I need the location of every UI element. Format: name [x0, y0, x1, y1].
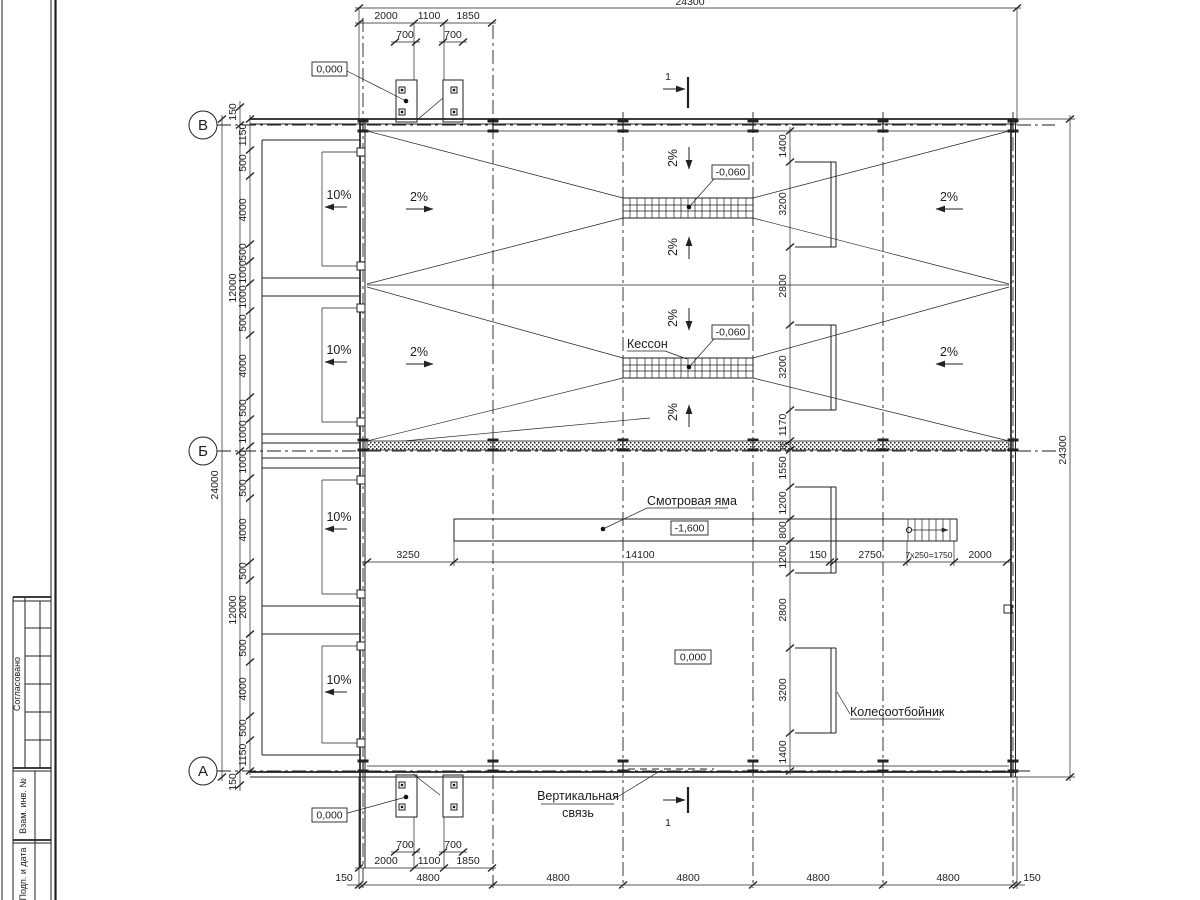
- hall-level: 0,000: [675, 650, 711, 664]
- dim-4800-5: 4800: [936, 872, 960, 884]
- inspection-pit: Смотровая яма -1,600: [454, 494, 957, 541]
- dim-l-500-2: 500: [237, 243, 249, 261]
- caisson-grate-1: -0,060: [623, 165, 753, 218]
- caisson-label: Кессон: [627, 337, 668, 351]
- dim-l-1000-4: 1000: [237, 450, 249, 474]
- dim-r-1200-1: 1200: [777, 491, 789, 515]
- dim-l-24000: 24000: [209, 470, 221, 499]
- slope-2pct-g1-above: 2%: [666, 149, 680, 167]
- dim-r-80: 80: [778, 440, 788, 450]
- dim-r-1200-2: 1200: [777, 545, 789, 569]
- dim-700-bot-1: 700: [396, 839, 414, 851]
- axis-label-a: А: [198, 763, 208, 780]
- dim-r-2800-1: 2800: [777, 274, 789, 298]
- dim-4800-1: 4800: [416, 872, 440, 884]
- wheel-guard-label: Колесоотбойник: [850, 705, 945, 719]
- drain-channel: [367, 441, 1009, 450]
- dim-2000-top: 2000: [374, 10, 398, 22]
- ramp-slope-4: 10%: [326, 673, 351, 687]
- section-mark-top: 1: [663, 71, 688, 108]
- caisson-grate-2: -0,060 Кессон: [623, 325, 753, 378]
- ramps: 10% 10% 10% 10%: [262, 140, 365, 755]
- inspection-pit-label: Смотровая яма: [647, 494, 737, 508]
- dim-150-pit: 150: [809, 549, 827, 561]
- brace-label-line2: связь: [562, 806, 594, 820]
- slope-2pct-g2-above: 2%: [666, 309, 680, 327]
- dim-r-3200-1: 3200: [777, 192, 789, 216]
- slope-lines: [367, 131, 1009, 444]
- dim-4800-4: 4800: [806, 872, 830, 884]
- dim-l-150-top: 150: [227, 103, 239, 121]
- level-zero-bottom: 0,000: [316, 810, 342, 822]
- dim-total-top: 24300: [675, 0, 704, 8]
- dim-1100-top: 1100: [418, 10, 441, 22]
- ramp-slope-2: 10%: [326, 343, 351, 357]
- entrance-top: 0,000: [312, 62, 463, 122]
- dim-700-top-2: 700: [444, 29, 462, 41]
- section-number-bottom: 1: [665, 817, 671, 829]
- dim-4800-3: 4800: [676, 872, 700, 884]
- dim-l-500-7: 500: [237, 639, 249, 657]
- dim-l-4000-1: 4000: [237, 198, 249, 222]
- ramp-slope-1: 10%: [326, 188, 351, 202]
- dim-700-top-1: 700: [396, 29, 414, 41]
- dim-l-1150-2: 1150: [237, 744, 249, 767]
- dim-150-bot-left: 150: [335, 872, 353, 884]
- cross-slope-labels: 2% 2% 2% 2% 2% 2% 2% 2%: [406, 147, 963, 427]
- level-minus060-2: -0,060: [716, 327, 746, 339]
- grid-axes: В Б А: [189, 18, 1060, 888]
- slope-2pct-left-1: 2%: [410, 190, 428, 204]
- floor-plan-drawing: Согласовано Взам. инв. № Подп. и дата В …: [0, 0, 1200, 900]
- dim-700-bot-2: 700: [444, 839, 462, 851]
- level-zero-hall: 0,000: [680, 652, 706, 664]
- dim-1850-bot: 1850: [456, 855, 480, 867]
- dim-r-800: 800: [777, 521, 789, 539]
- dim-1100-bot: 1100: [418, 855, 441, 867]
- dim-l-12000-1: 12000: [227, 273, 239, 302]
- dim-3250: 3250: [396, 549, 420, 561]
- dim-150-bot-right: 150: [1023, 872, 1041, 884]
- dim-steps: 7х250=1750: [905, 550, 952, 560]
- entrance-bottom: 0,000: [312, 774, 463, 822]
- dim-l-1000-3: 1000: [237, 420, 249, 444]
- dim-l-12000-2: 12000: [227, 595, 239, 624]
- dim-l-4000-2: 4000: [237, 354, 249, 378]
- dim-14100: 14100: [625, 549, 654, 561]
- dim-r-1170: 1170: [777, 414, 789, 437]
- brace-label-line1: Вертикальная: [537, 789, 619, 803]
- section-mark-bottom: 1: [663, 787, 688, 829]
- dim-l-4000-4: 4000: [237, 677, 249, 701]
- level-zero-top: 0,000: [316, 64, 342, 76]
- dims-pit: 3250 14100 150 2750 7х250=1750 2000: [363, 541, 1011, 566]
- slope-2pct-right-2: 2%: [940, 345, 958, 359]
- level-minus1600: -1,600: [675, 523, 705, 535]
- level-minus060-1: -0,060: [716, 167, 746, 179]
- ramp-slope-labels: 10% 10% 10% 10%: [325, 188, 352, 692]
- dim-l-4000-3: 4000: [237, 518, 249, 542]
- ramp-slope-3: 10%: [326, 510, 351, 524]
- title-block: Согласовано Взам. инв. № Подп. и дата: [2, 0, 56, 900]
- dim-total-right: 24300: [1057, 435, 1069, 464]
- slope-2pct-left-2: 2%: [410, 345, 428, 359]
- dim-2000-pit: 2000: [968, 549, 992, 561]
- dim-2000-bot: 2000: [374, 855, 398, 867]
- dims-right-outer: 24300: [1017, 115, 1075, 781]
- titleblock-approved: Согласовано: [12, 657, 22, 711]
- dim-4800-2: 4800: [546, 872, 570, 884]
- dim-l-500-5: 500: [237, 479, 249, 497]
- dim-r-1400-2: 1400: [777, 740, 789, 764]
- dim-l-500-8: 500: [237, 719, 249, 737]
- dim-l-150-bot: 150: [227, 773, 239, 791]
- dim-r-1400-1: 1400: [777, 134, 789, 158]
- dim-r-3200-2: 3200: [777, 355, 789, 379]
- section-number-top: 1: [665, 71, 671, 83]
- slope-2pct-right-1: 2%: [940, 190, 958, 204]
- dim-2750: 2750: [858, 549, 882, 561]
- slope-2pct-g1-below: 2%: [666, 238, 680, 256]
- dim-l-500-1: 500: [237, 154, 249, 172]
- titleblock-sign-date: Подп. и дата: [18, 847, 28, 900]
- dim-r-1550: 1550: [777, 456, 789, 480]
- dim-r-3200-3: 3200: [777, 678, 789, 702]
- dim-r-2800-2: 2800: [777, 598, 789, 622]
- dim-l-500-3: 500: [237, 314, 249, 332]
- axis-label-b: Б: [198, 443, 208, 460]
- dim-l-500-6: 500: [237, 562, 249, 580]
- dim-l-500-4: 500: [237, 399, 249, 417]
- walls: [250, 119, 1017, 868]
- titleblock-inv-number: Взам. инв. №: [18, 778, 28, 834]
- dim-1850-top: 1850: [456, 10, 480, 22]
- axis-label-v: В: [198, 117, 208, 134]
- slope-2pct-g2-below: 2%: [666, 403, 680, 421]
